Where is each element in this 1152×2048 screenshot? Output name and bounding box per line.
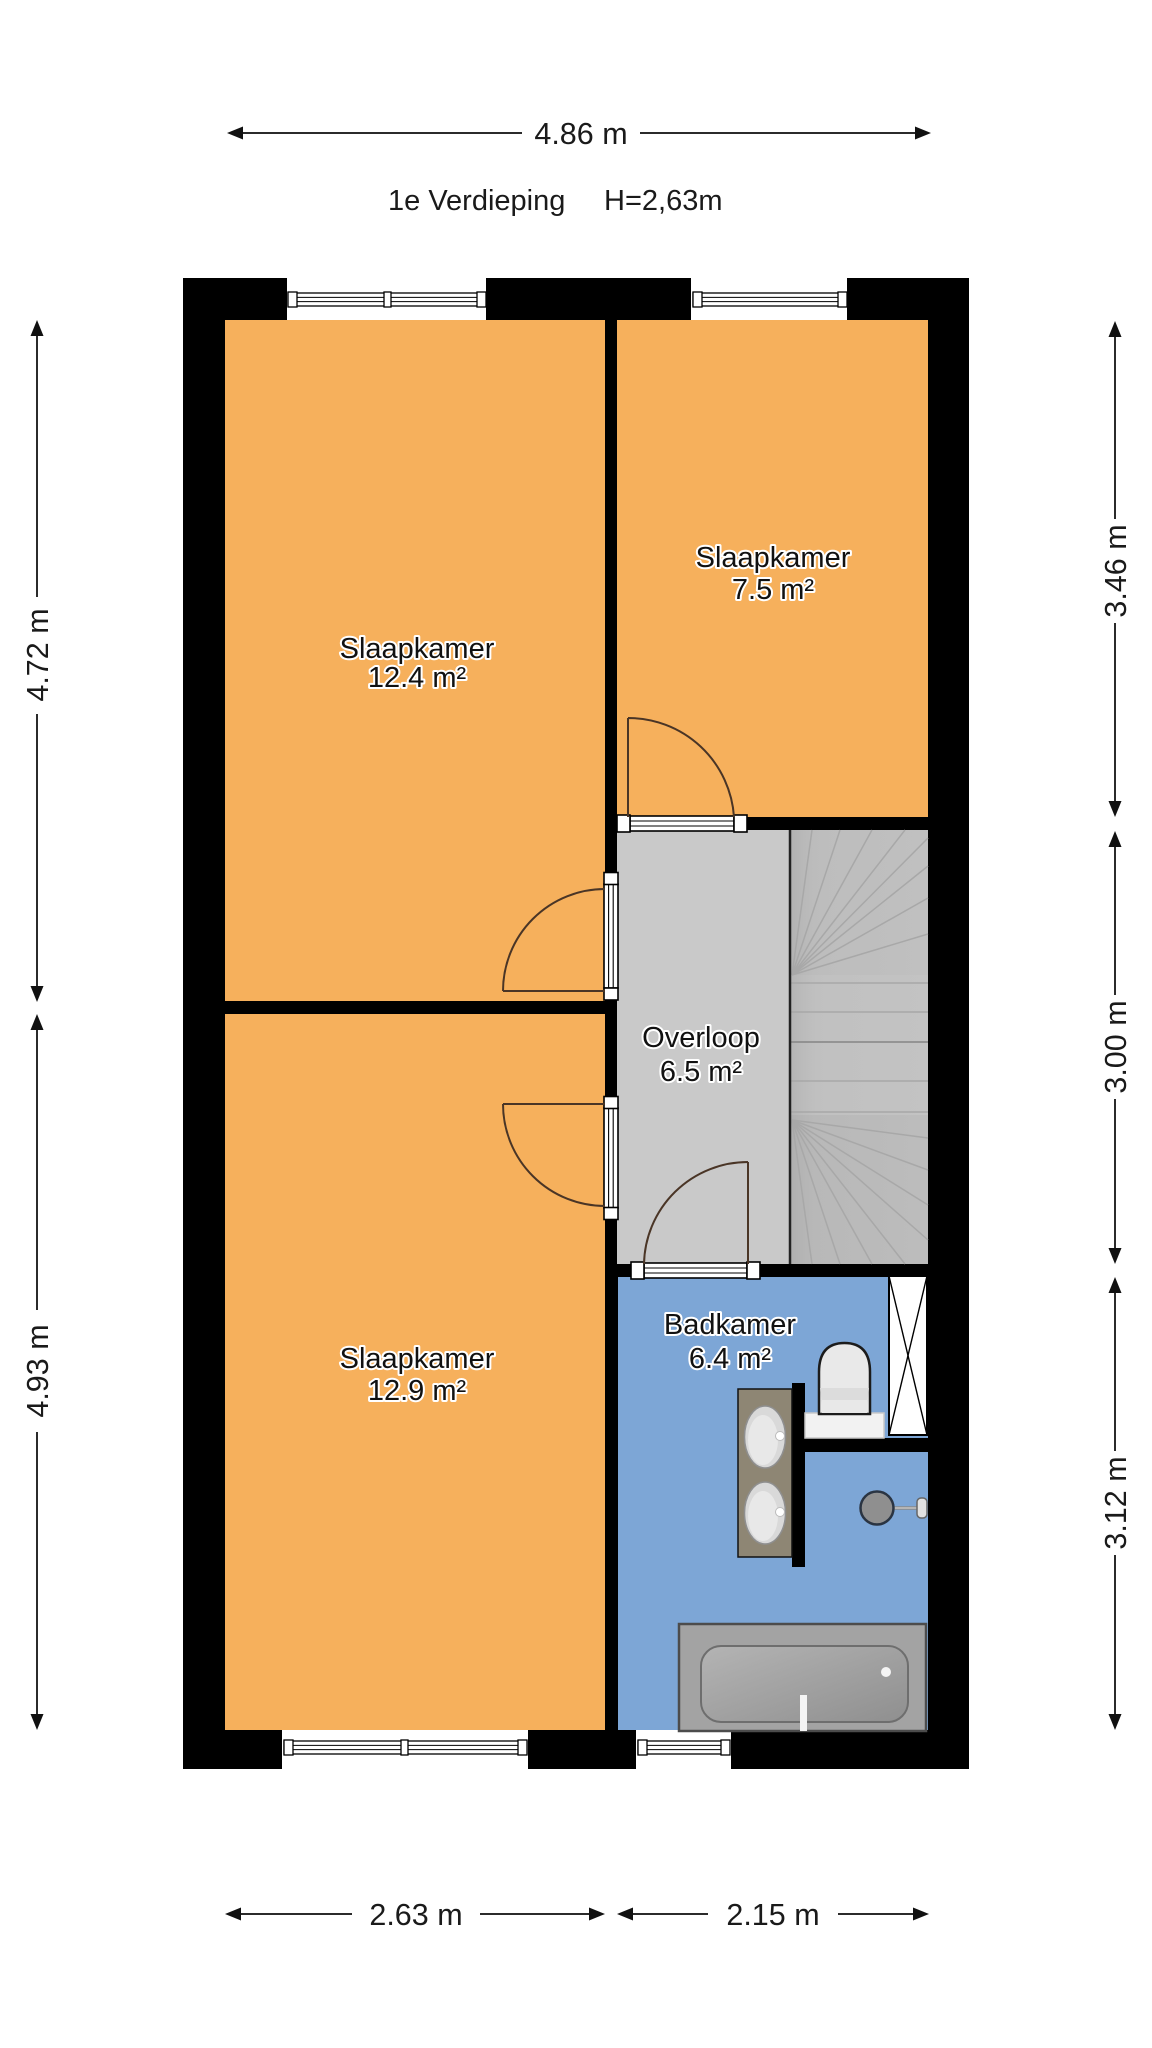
svg-text:Overloop: Overloop <box>642 1022 760 1054</box>
svg-text:12.9 m²: 12.9 m² <box>368 1375 467 1407</box>
svg-text:Slaapkamer: Slaapkamer <box>696 542 851 574</box>
svg-text:4.86 m: 4.86 m <box>534 117 627 151</box>
svg-text:12.4 m²: 12.4 m² <box>368 662 467 694</box>
svg-text:H=2,63m: H=2,63m <box>604 185 722 217</box>
svg-text:4.72 m: 4.72 m <box>21 608 55 701</box>
svg-text:3.12 m: 3.12 m <box>1099 1456 1133 1549</box>
svg-text:3.00 m: 3.00 m <box>1099 1000 1133 1093</box>
svg-text:2.15 m: 2.15 m <box>726 1898 819 1932</box>
svg-text:7.5 m²: 7.5 m² <box>732 574 815 606</box>
svg-text:6.4 m²: 6.4 m² <box>689 1343 772 1375</box>
svg-text:6.5 m²: 6.5 m² <box>660 1056 743 1088</box>
svg-text:1e Verdieping: 1e Verdieping <box>388 185 565 217</box>
svg-text:3.46 m: 3.46 m <box>1099 524 1133 617</box>
svg-text:Slaapkamer: Slaapkamer <box>340 1343 495 1375</box>
svg-text:Slaapkamer: Slaapkamer <box>340 633 495 665</box>
svg-text:2.63 m: 2.63 m <box>369 1898 462 1932</box>
svg-text:Badkamer: Badkamer <box>664 1309 797 1341</box>
svg-text:4.93 m: 4.93 m <box>21 1324 55 1417</box>
